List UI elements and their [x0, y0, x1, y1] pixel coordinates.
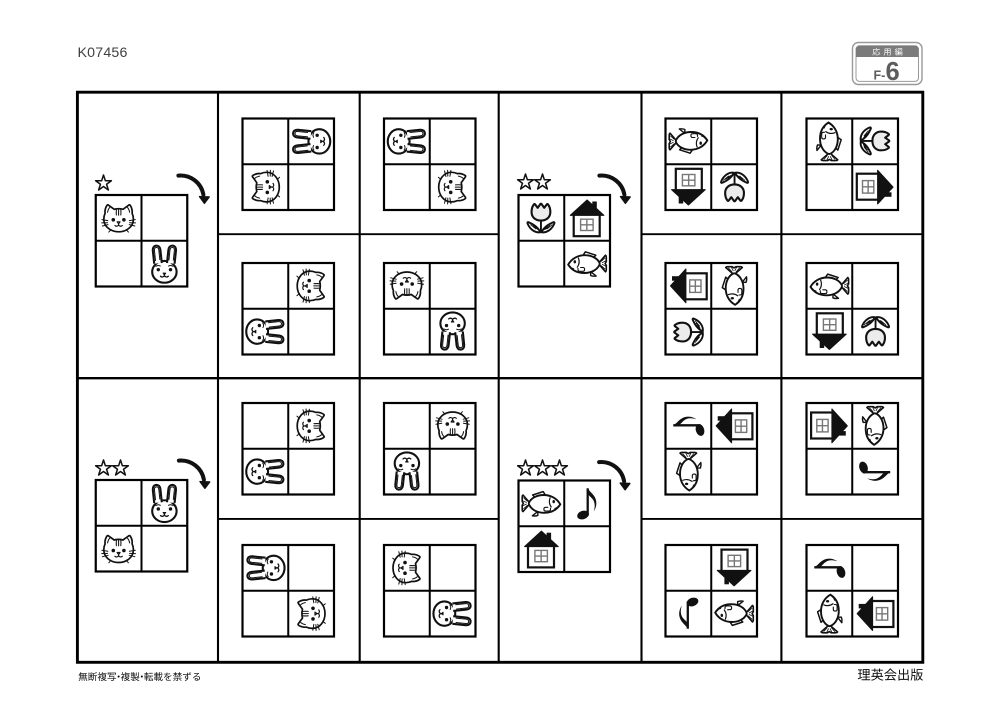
svg-text:F-: F-	[874, 68, 886, 82]
svg-text:K07456: K07456	[78, 45, 128, 61]
svg-text:6: 6	[886, 58, 900, 86]
